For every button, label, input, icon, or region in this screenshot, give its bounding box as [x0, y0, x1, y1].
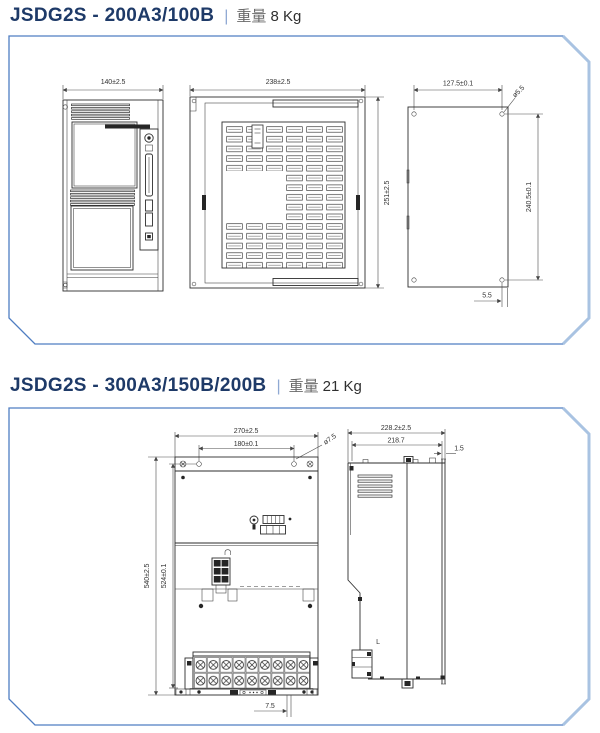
s1-back-edge-dim: 5.5: [482, 293, 492, 300]
s2-front-terminal-block: [185, 652, 318, 689]
s1-back-height-dim: 240.5±0.1: [526, 182, 533, 212]
section2-header: JSDG2S - 300A3/150B/200B | 重量 21 Kg: [10, 375, 362, 397]
s1-back-width-dim: 127.5±0.1: [443, 81, 473, 88]
s1-side-label-plate: [252, 125, 263, 148]
s2-front-holes-width-dim: 180±0.1: [234, 441, 259, 448]
s2-side-plate-thickness-dim: 1.5: [454, 446, 464, 453]
s1-side-right-latch: [356, 195, 360, 210]
section2-weight-value: 21 Kg: [323, 378, 362, 395]
s2-side-body-depth-dim: 218.7: [387, 438, 404, 445]
s1-side-width-dim: 238±2.5: [266, 79, 291, 86]
section1-separator: |: [224, 8, 228, 26]
s1-side-height-dim: 251±2.5: [384, 181, 391, 206]
section2-weight-label: 重量: [289, 375, 319, 396]
s2-side-depth-dim: 228.2±2.5: [381, 425, 411, 432]
s2-front-width-dim: 270±2.5: [234, 428, 259, 435]
s1-front-width-dim: 140±2.5: [101, 79, 126, 86]
s2-front-edge-dim: 7.5: [265, 703, 275, 710]
s2-front-led-dot: [289, 518, 292, 521]
s2-side-l-label: L: [376, 639, 380, 646]
section1-model-number: JSDG2S - 200A3/100B: [10, 5, 214, 27]
s1-side-vents-right: [286, 126, 343, 268]
section1-header: JSDG2S - 200A3/100B | 重量 8 Kg: [10, 5, 301, 27]
section1-weight-value: 8 Kg: [270, 8, 301, 25]
section2-separator: |: [276, 378, 280, 396]
section1-weight-label: 重量: [236, 5, 266, 26]
page: { "colors": { "panel_border": "#4f7ec2",…: [0, 0, 600, 733]
s2-front-holes-height-dim: 524±0.1: [161, 564, 168, 589]
section1-drawing: 140±2.5: [0, 33, 600, 351]
section2-drawing: 270±2.5 180±0.1 ø7.5 540±2.5 524±0.1: [0, 405, 600, 733]
s1-side-vents-bottom-left: [226, 223, 284, 268]
s2-front-height-dim: 540±2.5: [144, 564, 151, 589]
section2-model-number: JSDG2S - 300A3/150B/200B: [10, 375, 266, 397]
s2-front-terminals: [194, 657, 310, 689]
s1-side-left-latch: [202, 195, 206, 210]
